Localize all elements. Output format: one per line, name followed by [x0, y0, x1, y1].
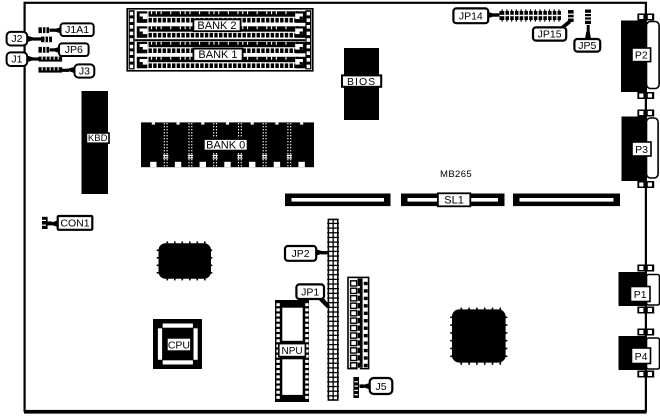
svg-text:JP6: JP6 — [65, 44, 83, 56]
svg-text:J1A1: J1A1 — [65, 24, 89, 36]
svg-text:JP2: JP2 — [292, 248, 310, 260]
svg-text:NPU: NPU — [282, 346, 303, 357]
svg-text:J1: J1 — [11, 54, 22, 66]
svg-text:BANK 2: BANK 2 — [197, 20, 236, 32]
svg-text:P1: P1 — [634, 289, 647, 301]
svg-text:P4: P4 — [635, 351, 648, 363]
svg-text:JP15: JP15 — [538, 29, 562, 41]
svg-text:J5: J5 — [375, 381, 386, 393]
svg-text:JP1: JP1 — [301, 286, 319, 298]
svg-text:P2: P2 — [635, 50, 648, 62]
svg-text:KBD: KBD — [88, 133, 108, 144]
svg-text:JP14: JP14 — [459, 10, 483, 22]
svg-text:MB265: MB265 — [440, 169, 472, 180]
svg-text:BANK 0: BANK 0 — [206, 139, 245, 151]
svg-text:BANK 1: BANK 1 — [198, 49, 237, 61]
svg-text:JP5: JP5 — [578, 40, 596, 52]
svg-text:P3: P3 — [635, 144, 648, 156]
svg-text:CON1: CON1 — [60, 217, 89, 229]
svg-text:CPU: CPU — [168, 339, 190, 351]
svg-text:BIOS: BIOS — [347, 76, 376, 88]
svg-text:J3: J3 — [79, 65, 90, 77]
svg-text:SL1: SL1 — [444, 194, 464, 206]
svg-text:J2: J2 — [11, 33, 22, 45]
